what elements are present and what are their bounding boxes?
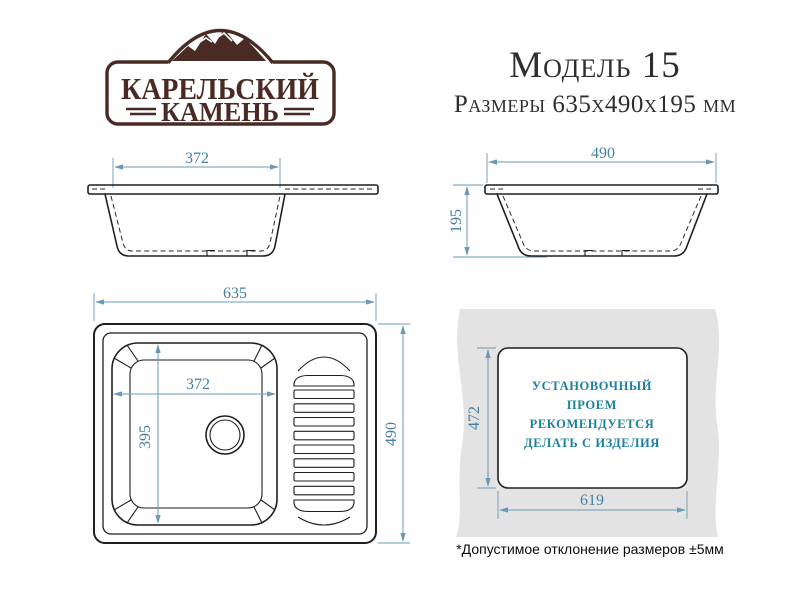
brand-line2: КАМЕНЬ (161, 97, 279, 127)
front-bowl-outline (105, 194, 285, 256)
overall-size-line: Размеры 635х490х195 мм (435, 90, 755, 120)
side-height-label: 195 (448, 209, 465, 233)
cutout-note-line: ДЕЛАТЬ С ИЗДЕЛИЯ (524, 436, 660, 450)
top-overall-depth-label: 490 (383, 422, 400, 446)
header: Модель 15 Размеры 635х490х195 мм (435, 46, 755, 120)
side-bowl-inner-line (503, 196, 701, 251)
cutout-height-label: 472 (466, 406, 483, 430)
brand-logo: КАРЕЛЬСКИЙ КАМЕНЬ (96, 20, 346, 138)
model-title: Модель 15 (435, 46, 755, 86)
tolerance-footnote: *Допустимое отклонение размеров ±5мм (430, 541, 750, 557)
side-view-drawing: 490 195 (435, 143, 745, 268)
cutout-view-drawing: УСТАНОВОЧНЫЙ ПРОЕМ РЕКОМЕНДУЕТСЯ ДЕЛАТЬ … (430, 295, 750, 545)
top-bowl-length-label: 395 (137, 425, 154, 449)
front-bowl-inner-line (111, 196, 280, 251)
side-bowl-outline (497, 194, 707, 256)
top-bowl-width-label: 372 (186, 376, 210, 393)
side-flange (485, 185, 718, 194)
side-depth-label: 490 (591, 145, 615, 162)
cutout-note-line: ПРОЕМ (567, 398, 617, 412)
cutout-width-label: 619 (580, 492, 604, 509)
cutout-note-line: РЕКОМЕНДУЕТСЯ (530, 417, 655, 431)
front-bowl-width-label: 372 (185, 150, 209, 167)
top-overall-width-label: 635 (223, 285, 247, 302)
front-view-drawing: 372 (80, 143, 400, 268)
cutout-note-line: УСТАНОВОЧНЫЙ (532, 379, 652, 393)
top-view-drawing: 635 490 372 395 (78, 285, 413, 555)
page: { "brand": { "line1": "КАРЕЛЬСКИЙ", "lin… (0, 0, 800, 612)
